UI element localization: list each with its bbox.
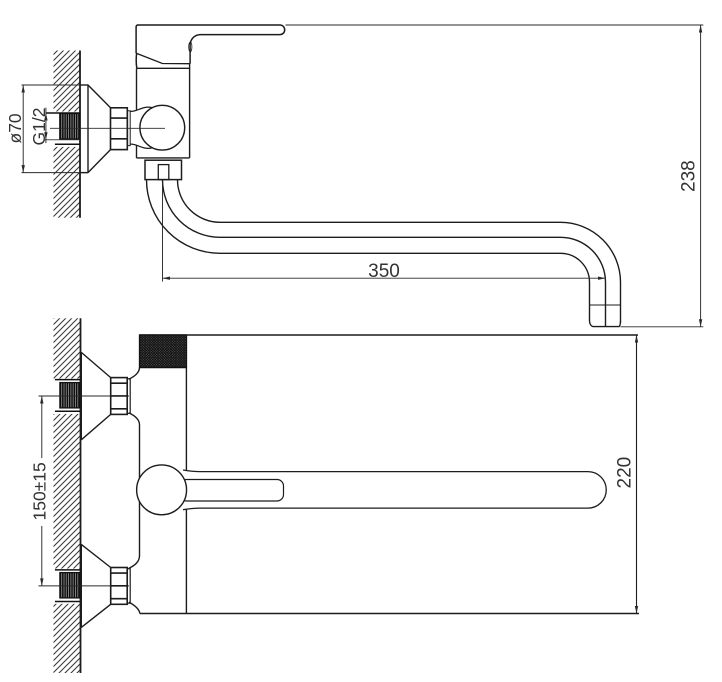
svg-text:ø70: ø70 <box>5 113 25 143</box>
svg-text:G1/2: G1/2 <box>29 108 49 146</box>
svg-text:238: 238 <box>679 160 700 192</box>
svg-text:350: 350 <box>368 261 400 282</box>
svg-text:150±15: 150±15 <box>30 462 50 520</box>
svg-text:220: 220 <box>615 457 636 489</box>
